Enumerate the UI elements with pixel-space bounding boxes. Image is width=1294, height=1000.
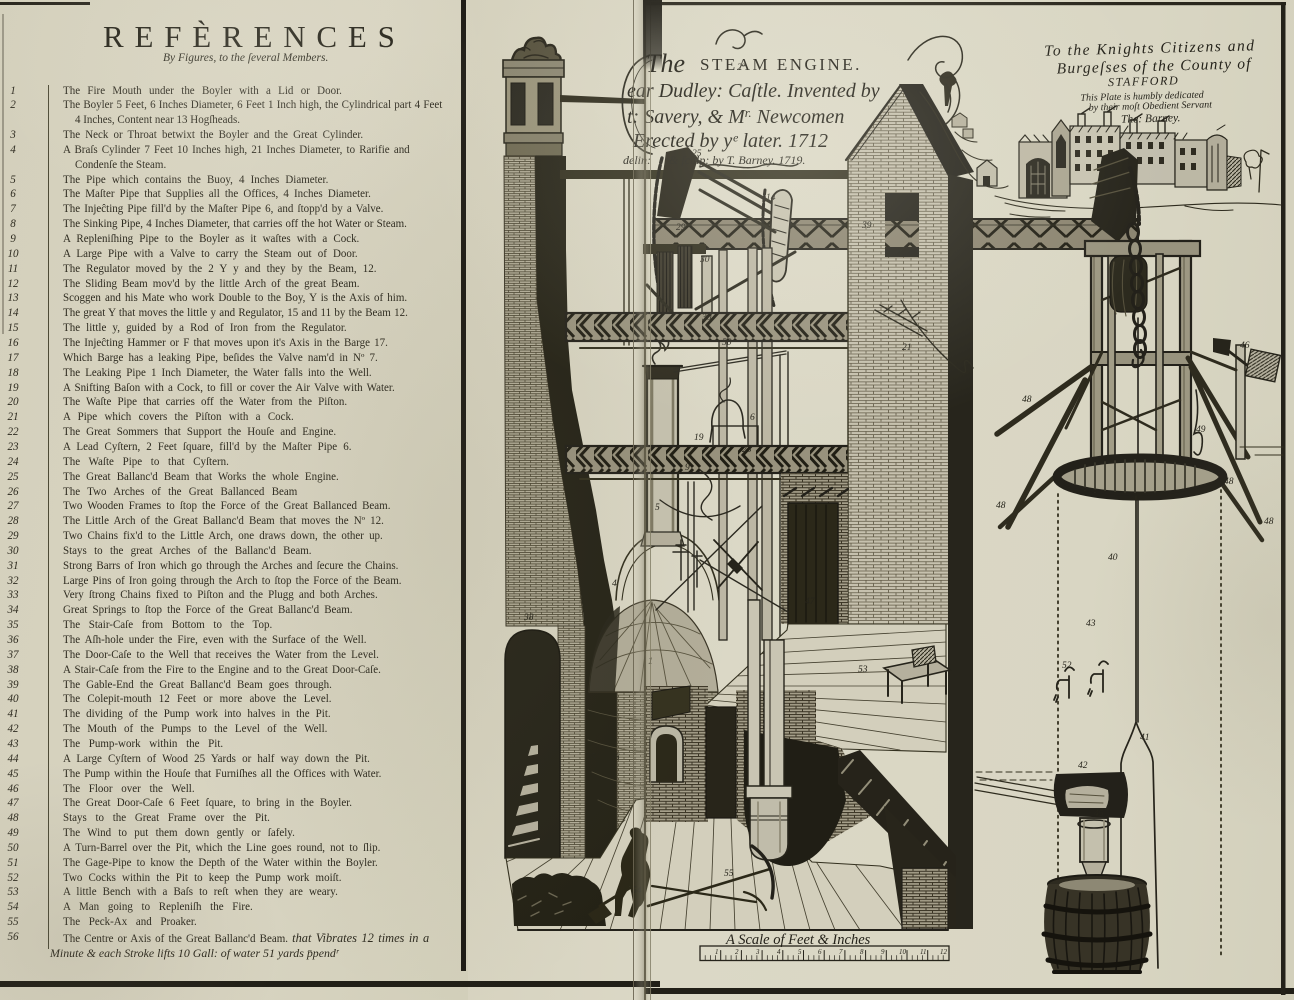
svg-text:30: 30 <box>701 313 712 323</box>
svg-text:30: 30 <box>699 255 710 265</box>
svg-text:7: 7 <box>839 948 843 956</box>
svg-text:23: 23 <box>742 445 752 455</box>
svg-text:The: Barney.: The: Barney. <box>1121 112 1181 126</box>
svg-text:38: 38 <box>523 613 534 623</box>
svg-text:29: 29 <box>676 223 686 233</box>
svg-text:48: 48 <box>1264 517 1274 527</box>
svg-text:t: Savery, & Mr. Newcomen: t: Savery, & Mr. Newcomen <box>627 105 844 128</box>
svg-text:47: 47 <box>805 597 816 607</box>
svg-text:Erected by yᵉ later. 1712: Erected by yᵉ later. 1712 <box>632 130 828 152</box>
svg-text:36: 36 <box>609 753 620 763</box>
svg-text:3: 3 <box>755 948 760 956</box>
svg-text:48: 48 <box>996 501 1006 511</box>
svg-text:by their moſt Obedient Servant: by their moſt Obedient Servant <box>1089 99 1213 113</box>
svg-text:48: 48 <box>1022 395 1032 405</box>
svg-text:49: 49 <box>1196 425 1206 435</box>
svg-text:4: 4 <box>612 579 617 589</box>
svg-text:6: 6 <box>818 948 822 956</box>
svg-text:STAFFORD: STAFFORD <box>1108 73 1180 89</box>
svg-text:9: 9 <box>881 948 885 956</box>
svg-text:43: 43 <box>1086 619 1096 629</box>
svg-text:42: 42 <box>1078 761 1088 771</box>
svg-text:5: 5 <box>655 503 660 513</box>
svg-text:25: 25 <box>692 149 702 159</box>
svg-text:5: 5 <box>798 948 802 956</box>
svg-text:6: 6 <box>750 413 755 423</box>
svg-text:2: 2 <box>735 948 739 956</box>
svg-text:11: 11 <box>920 948 926 956</box>
svg-text:41: 41 <box>1140 733 1150 743</box>
svg-text:8: 8 <box>860 948 864 956</box>
svg-text:55: 55 <box>724 869 734 879</box>
svg-text:4: 4 <box>777 948 781 956</box>
svg-text:9: 9 <box>685 463 690 473</box>
svg-text:14: 14 <box>766 193 776 203</box>
svg-text:12: 12 <box>940 948 948 956</box>
svg-text:STEAM ENGINE.: STEAM ENGINE. <box>700 55 862 74</box>
svg-text:45: 45 <box>1094 809 1104 819</box>
svg-text:50: 50 <box>722 338 732 348</box>
svg-text:10: 10 <box>899 948 907 956</box>
svg-text:34: 34 <box>849 795 860 805</box>
svg-text:19: 19 <box>694 433 704 443</box>
svg-text:2º: 2º <box>737 63 746 73</box>
svg-text:21: 21 <box>902 343 912 353</box>
svg-text:48: 48 <box>1224 477 1234 487</box>
svg-text:39: 39 <box>861 221 872 231</box>
svg-text:35: 35 <box>585 753 596 763</box>
svg-text:46: 46 <box>1240 341 1250 351</box>
svg-text:53: 53 <box>858 665 868 675</box>
svg-text:ear Dudley: Caſtle. Invented b: ear Dudley: Caſtle. Invented by <box>627 80 880 102</box>
svg-text:1: 1 <box>715 948 719 956</box>
svg-text:40: 40 <box>1108 553 1118 563</box>
svg-text:52: 52 <box>1062 661 1072 671</box>
